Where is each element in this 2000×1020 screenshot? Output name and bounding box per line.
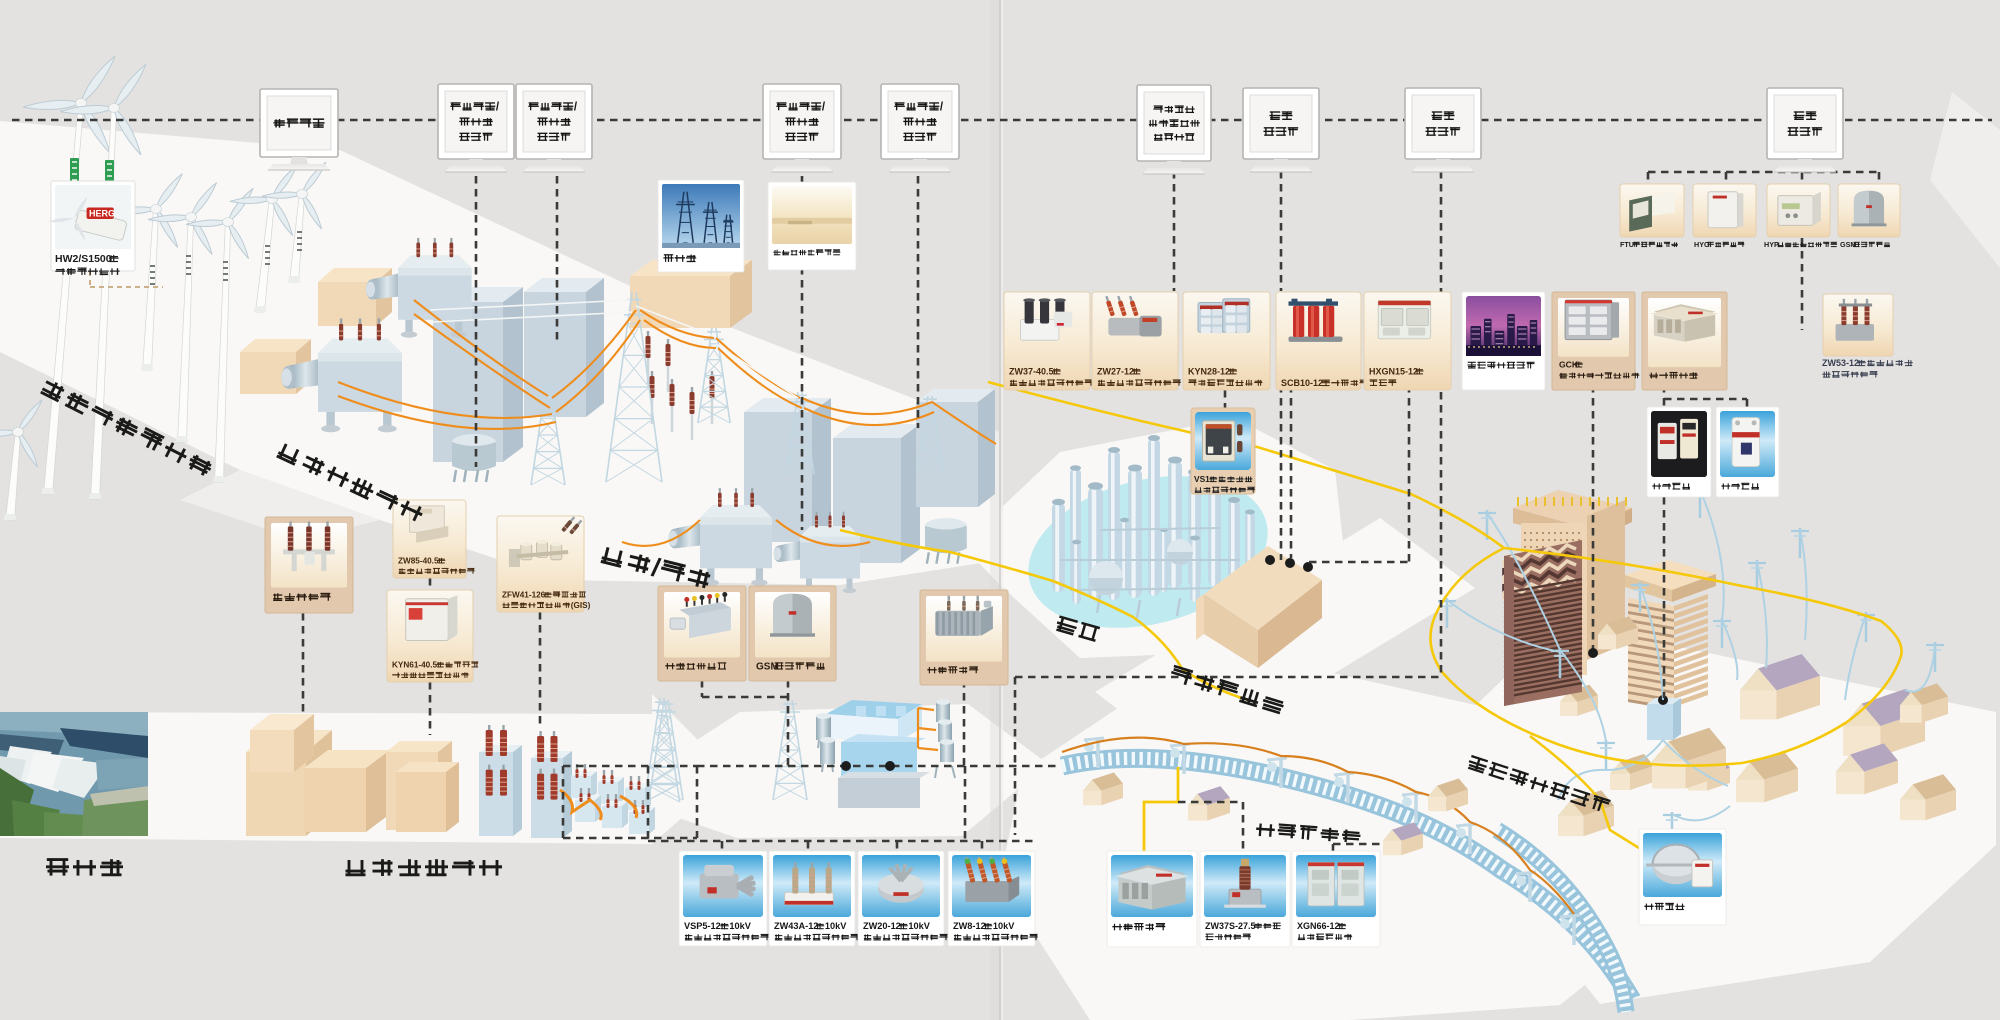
svg-text:VSP5-12: VSP5-12 (684, 921, 721, 931)
svg-text:10kV: 10kV (908, 921, 930, 931)
svg-text:KYN28-12: KYN28-12 (1188, 366, 1230, 376)
svg-text:ZW20-12: ZW20-12 (863, 921, 901, 931)
svg-text:(GIS): (GIS) (571, 601, 591, 610)
svg-text:XGN66-12: XGN66-12 (1297, 921, 1340, 931)
svg-text:SCB10-12: SCB10-12 (1281, 378, 1323, 388)
svg-text:HERG: HERG (89, 208, 115, 218)
svg-text:ZW37S-27.5: ZW37S-27.5 (1205, 921, 1256, 931)
svg-text:ZW43A-12: ZW43A-12 (774, 921, 818, 931)
svg-text:HXGN15-12: HXGN15-12 (1369, 366, 1418, 376)
svg-text:10kV: 10kV (825, 921, 847, 931)
svg-text:ZW8-12: ZW8-12 (953, 921, 986, 931)
svg-text:ZW53-12: ZW53-12 (1822, 358, 1859, 368)
svg-text:ZW27-12: ZW27-12 (1097, 366, 1134, 376)
svg-text:ZW37-40.5: ZW37-40.5 (1009, 366, 1054, 376)
svg-text:FTU: FTU (1620, 240, 1634, 249)
svg-text:10kV: 10kV (729, 921, 751, 931)
svg-text:KYN61-40.5: KYN61-40.5 (392, 660, 438, 669)
svg-text:VS1: VS1 (1194, 474, 1210, 484)
svg-text:10kV: 10kV (993, 921, 1015, 931)
svg-text:HYP: HYP (1764, 240, 1779, 249)
svg-text:ZW85-40.5: ZW85-40.5 (398, 556, 439, 565)
svg-text:HYC: HYC (1694, 240, 1709, 249)
svg-text:ZFW41-126: ZFW41-126 (502, 590, 546, 599)
svg-text:HW2/S1500: HW2/S1500 (55, 253, 112, 265)
